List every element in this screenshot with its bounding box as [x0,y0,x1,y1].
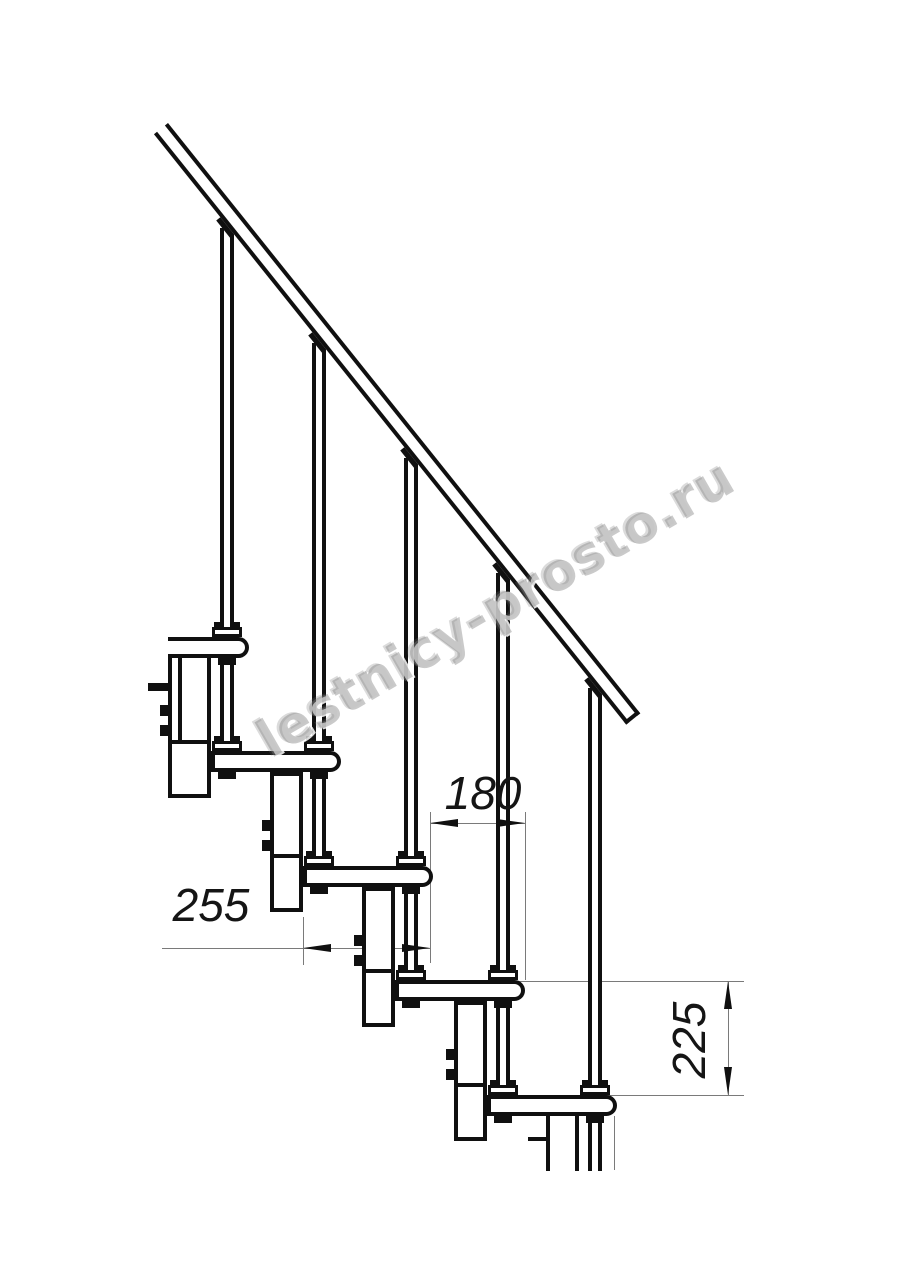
extension-line [614,1116,615,1170]
support-post [312,772,326,866]
support-box-divider [362,969,395,973]
extension-line [525,812,526,980]
under-nut [494,1001,512,1008]
post-foot-flange [580,1085,610,1095]
support-box-divider [454,1083,487,1087]
extension-line [430,812,431,963]
extension-line [303,917,304,965]
support-post [220,658,234,751]
under-nut [310,887,328,894]
locknut [214,622,221,628]
locknut [306,851,313,857]
locknut [417,965,424,971]
support-box-edge [546,1116,550,1171]
dimension-arrow [497,819,525,827]
bolt-tab [262,840,270,851]
under-nut [402,887,420,894]
under-nut [586,1116,604,1123]
dimension-arrow [303,944,331,952]
bolt-tab [160,705,168,716]
dimension-arrow [402,944,430,952]
support-box-divider [168,740,211,744]
tread [487,1095,617,1116]
baluster [588,688,602,1095]
post-foot-flange [488,1085,518,1095]
locknut [233,736,240,742]
bolt-tab [262,820,270,831]
under-nut [494,1116,512,1123]
locknut [233,622,240,628]
post-foot-flange [212,627,242,637]
locknut [398,851,405,857]
technical-drawing-page: 180 255 225 lestnicy-prosto.ru [0,0,914,1280]
bolt-tab [160,725,168,736]
locknut [490,1080,497,1086]
baluster [220,228,234,637]
tread [303,866,433,887]
locknut [398,965,405,971]
support-post [496,1001,510,1095]
locknut [325,851,332,857]
support-box-divider [270,854,303,858]
support-box [454,1001,487,1141]
post-foot-flange [212,741,242,751]
locknut [214,736,221,742]
support-post [404,887,418,980]
tread [168,637,249,658]
extension-line [600,1095,744,1096]
bolt-tab [354,955,362,966]
bolt-tab [446,1069,454,1080]
under-nut [218,658,236,665]
locknut [490,965,497,971]
bolt-tab [354,935,362,946]
dimension-arrow [430,819,458,827]
locknut [601,1080,608,1086]
support-box-flange [528,1137,546,1141]
bolt-tab [446,1049,454,1060]
support-post [588,1116,602,1171]
post-foot-flange [488,970,518,980]
post-foot-flange [396,970,426,980]
dimension-arrow [724,981,732,1009]
support-box-edge [575,1116,579,1171]
support-box-edge [178,658,182,744]
post-foot-flange [396,856,426,866]
extension-line [518,981,744,982]
dimension-180-label: 180 [438,770,528,816]
support-box-bottom [168,794,211,798]
under-nut [402,1001,420,1008]
bolt-tab [148,683,169,691]
locknut [417,851,424,857]
post-foot-flange [304,856,334,866]
tread [395,980,525,1001]
under-nut [310,772,328,779]
support-box [362,887,395,1027]
dimension-255-label: 255 [166,882,256,928]
under-nut [218,772,236,779]
dimension-arrow [724,1067,732,1095]
support-box-edge [207,658,211,798]
locknut [509,965,516,971]
locknut [509,1080,516,1086]
dimension-225-label: 225 [651,985,727,1095]
locknut [582,1080,589,1086]
support-box [270,772,303,912]
support-box-edge [168,658,172,798]
